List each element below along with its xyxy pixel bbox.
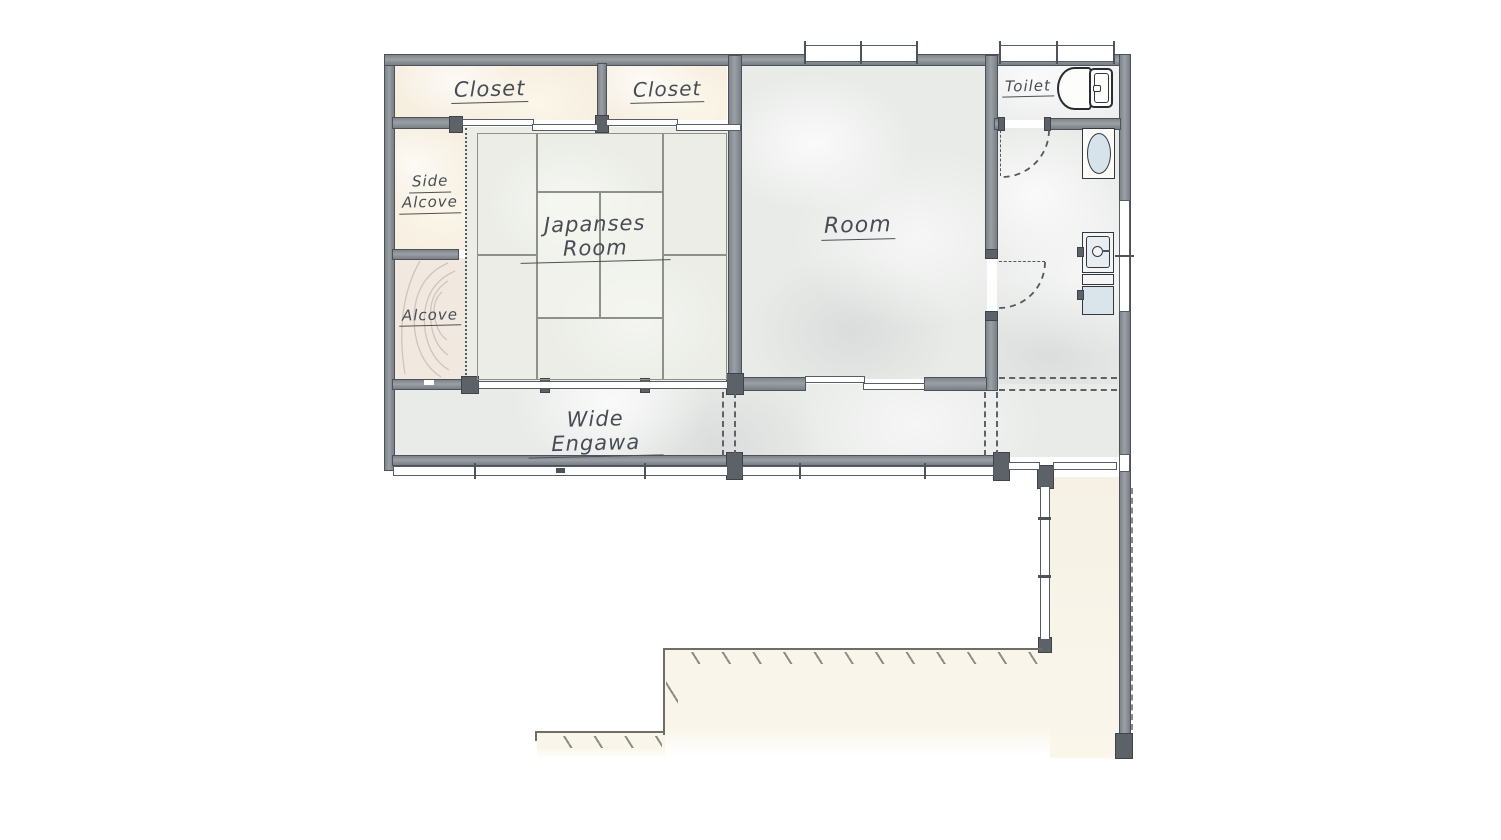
window-tick bbox=[644, 463, 646, 479]
tatami-line bbox=[537, 191, 663, 193]
vanity-handle bbox=[1078, 248, 1083, 256]
engawa-bay-divider bbox=[996, 392, 998, 456]
japanese-room-east-wall bbox=[729, 56, 741, 394]
closet-left-label: Closet bbox=[430, 77, 550, 103]
hall-door-leaf bbox=[999, 261, 1045, 262]
post-engawa-center bbox=[727, 374, 743, 394]
step-edge-top bbox=[663, 648, 1042, 650]
screen-tick bbox=[1038, 575, 1051, 578]
hall-door-jamb-bottom bbox=[986, 312, 997, 320]
toilet-door-jamb bbox=[999, 118, 1004, 130]
engawa-bay-divider bbox=[722, 392, 724, 456]
vanity-lower-unit bbox=[1082, 286, 1114, 315]
toilet-bowl-icon bbox=[1057, 67, 1092, 110]
step-edge-end-tick bbox=[535, 731, 537, 741]
step-edge-vertical bbox=[663, 648, 665, 735]
post-engawa-nw bbox=[462, 377, 478, 393]
hall-door-jamb-top bbox=[986, 250, 997, 258]
side-alcove-divider bbox=[465, 128, 467, 379]
engawa-bay-divider bbox=[734, 392, 736, 456]
post-south-wall-center bbox=[727, 453, 742, 479]
closet-right-label: Closet bbox=[607, 77, 727, 103]
engawa-south-wall bbox=[393, 456, 996, 465]
step-hatching bbox=[542, 736, 662, 748]
tatami-line bbox=[663, 254, 727, 256]
wide-engawa-label: Wide Engawa bbox=[528, 407, 663, 457]
south-window-right bbox=[1053, 462, 1117, 470]
window-tick bbox=[799, 463, 801, 479]
step-edge-lower bbox=[535, 731, 665, 733]
vanity-faucet-handle bbox=[1102, 250, 1110, 252]
room-south-wall-west bbox=[741, 378, 805, 390]
room-east-wall-lower bbox=[986, 316, 997, 390]
vanity-middle-drawer bbox=[1082, 274, 1114, 285]
wall-outer-hatch-line bbox=[1131, 488, 1133, 730]
floor-plan: Closet Closet Side Alcove Alcove Japanse… bbox=[0, 0, 1501, 840]
engawa-floor bbox=[393, 384, 1120, 457]
room-south-wall-east bbox=[925, 378, 986, 390]
closet-right-fusuma-b bbox=[676, 124, 741, 131]
outer-wall-right-cap bbox=[1116, 734, 1132, 758]
window-tick bbox=[1113, 41, 1115, 64]
south-window-small bbox=[1008, 462, 1040, 470]
engawa-bay-divider bbox=[984, 392, 986, 456]
outer-wall-right bbox=[1120, 55, 1130, 758]
room-label: Room bbox=[814, 213, 902, 240]
window-tick bbox=[1056, 41, 1058, 64]
window-overlap-mark bbox=[556, 468, 565, 473]
sink-basin-icon bbox=[1087, 133, 1111, 174]
room-south-slider-a bbox=[805, 376, 865, 383]
alcove-label: Alcove bbox=[394, 306, 466, 326]
japanese-room-label: Japanses Room bbox=[520, 212, 670, 262]
side-alcove-south-wall bbox=[393, 250, 458, 259]
room-south-slider-b bbox=[863, 383, 925, 390]
vanity-handle bbox=[1078, 291, 1083, 299]
tatami-line bbox=[537, 317, 663, 319]
alcove-wall-notch bbox=[424, 380, 434, 385]
terrace-main bbox=[665, 650, 1120, 757]
toilet-flush-nub bbox=[1093, 85, 1101, 92]
window-tick bbox=[924, 463, 926, 479]
window-tick bbox=[916, 41, 918, 64]
side-alcove-label: Side Alcove bbox=[394, 172, 466, 214]
closet-divider-wall bbox=[598, 64, 606, 121]
post-closet-track-west bbox=[450, 117, 462, 132]
screen-tick bbox=[1038, 517, 1051, 520]
window-tick bbox=[804, 41, 806, 64]
toilet-door-leaf bbox=[1000, 130, 1001, 176]
hall-boundary-dash bbox=[999, 377, 1117, 379]
engawa-north-track bbox=[478, 381, 728, 389]
closet-left-fusuma-a bbox=[462, 119, 534, 126]
toilet-door-jamb bbox=[1045, 118, 1050, 130]
toilet-label: Toilet bbox=[996, 77, 1060, 97]
step-hatching bbox=[666, 664, 678, 730]
window-tick bbox=[474, 463, 476, 479]
closet-left-fusuma-b bbox=[532, 124, 598, 131]
post-south-wall-east bbox=[994, 453, 1009, 480]
right-wall-gap bbox=[1119, 454, 1130, 472]
window-tick bbox=[1115, 255, 1134, 257]
step-hatching bbox=[670, 652, 1038, 664]
engawa-south-window-east bbox=[742, 466, 994, 476]
closet-right-fusuma-a bbox=[606, 119, 678, 126]
hall-boundary-dash bbox=[999, 389, 1117, 391]
screen-cap-top bbox=[1038, 466, 1053, 488]
window-tick bbox=[860, 41, 862, 64]
terrace-screen bbox=[1040, 486, 1050, 640]
window-tick bbox=[999, 41, 1001, 64]
